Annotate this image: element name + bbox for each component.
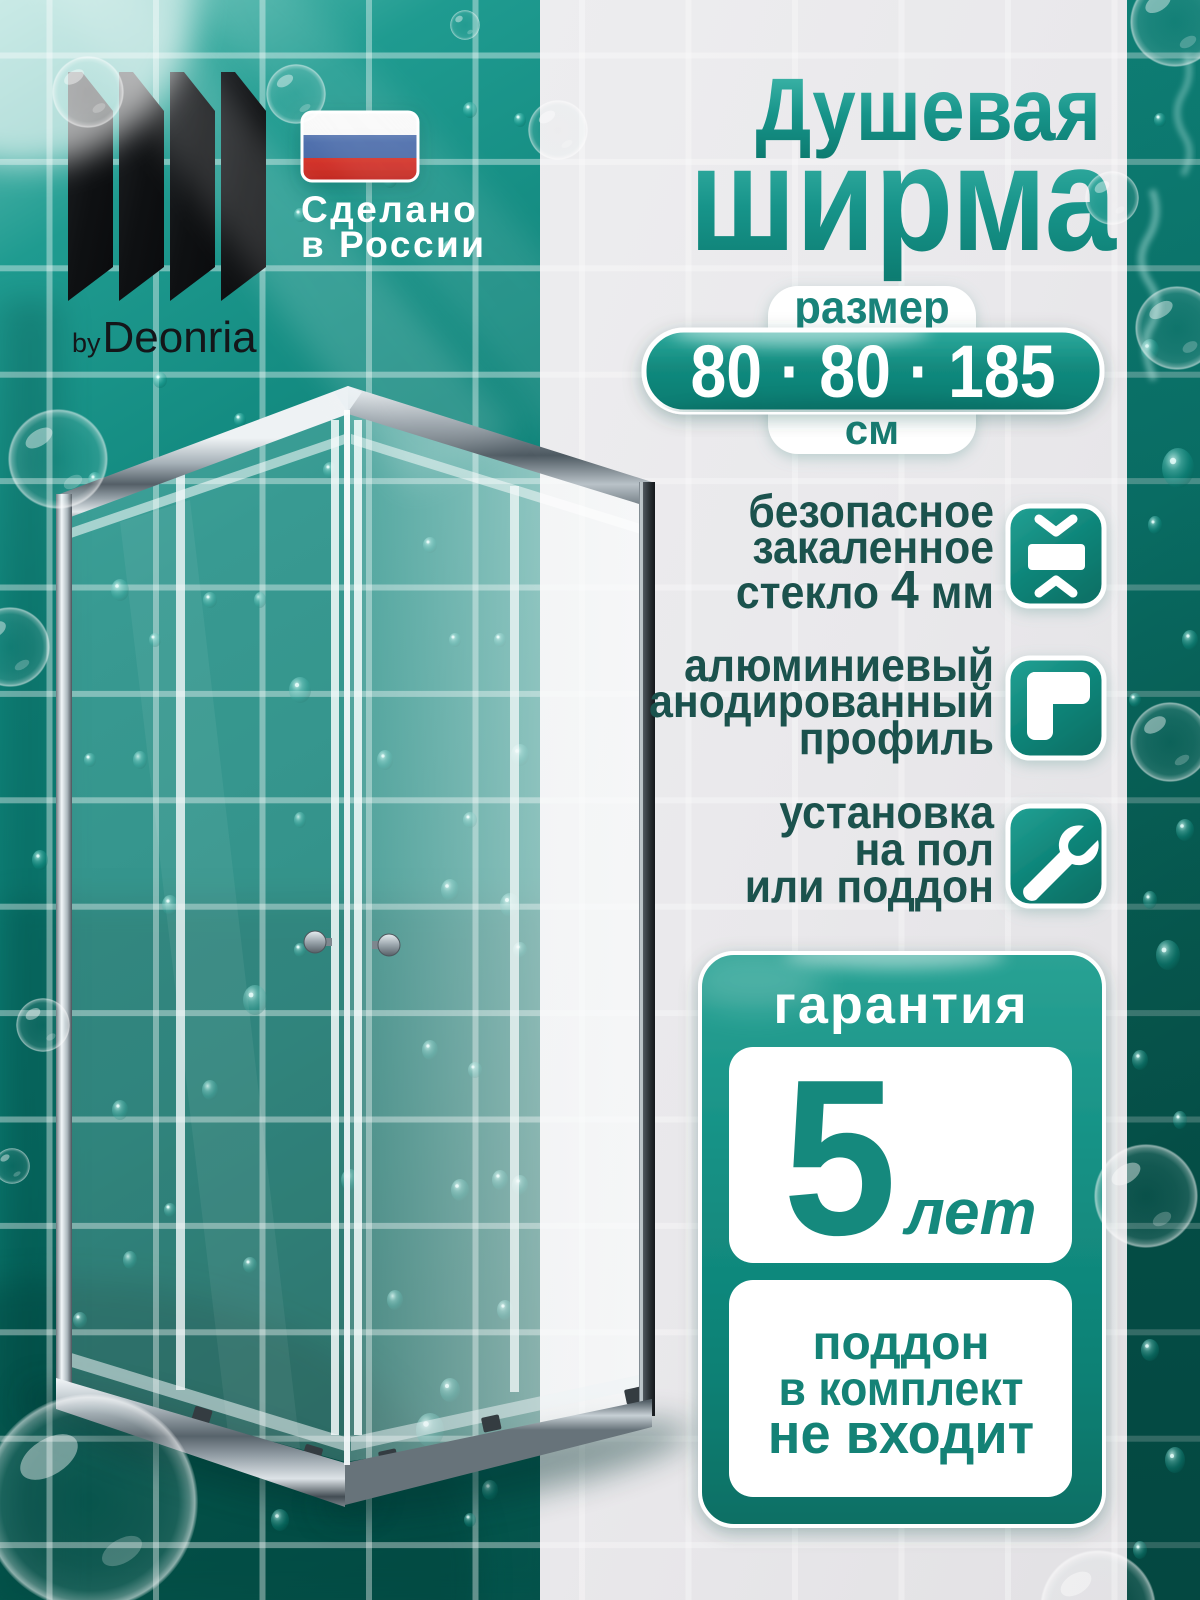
svg-text:или поддон: или поддон	[745, 862, 994, 913]
svg-text:стекло 4 мм: стекло 4 мм	[736, 560, 994, 620]
svg-text:профиль: профиль	[799, 714, 994, 765]
svg-text:размер: размер	[794, 281, 949, 333]
svg-text:не входит: не входит	[768, 1402, 1034, 1466]
svg-text:лет: лет	[902, 1176, 1036, 1248]
svg-text:ширма: ширма	[689, 115, 1117, 283]
svg-text:5: 5	[783, 1034, 897, 1282]
svg-text:80 · 80 · 185: 80 · 80 · 185	[690, 330, 1055, 413]
svg-text:гарантия: гарантия	[773, 975, 1028, 1035]
svg-text:закаленное: закаленное	[752, 523, 994, 574]
svg-text:см: см	[845, 406, 899, 453]
